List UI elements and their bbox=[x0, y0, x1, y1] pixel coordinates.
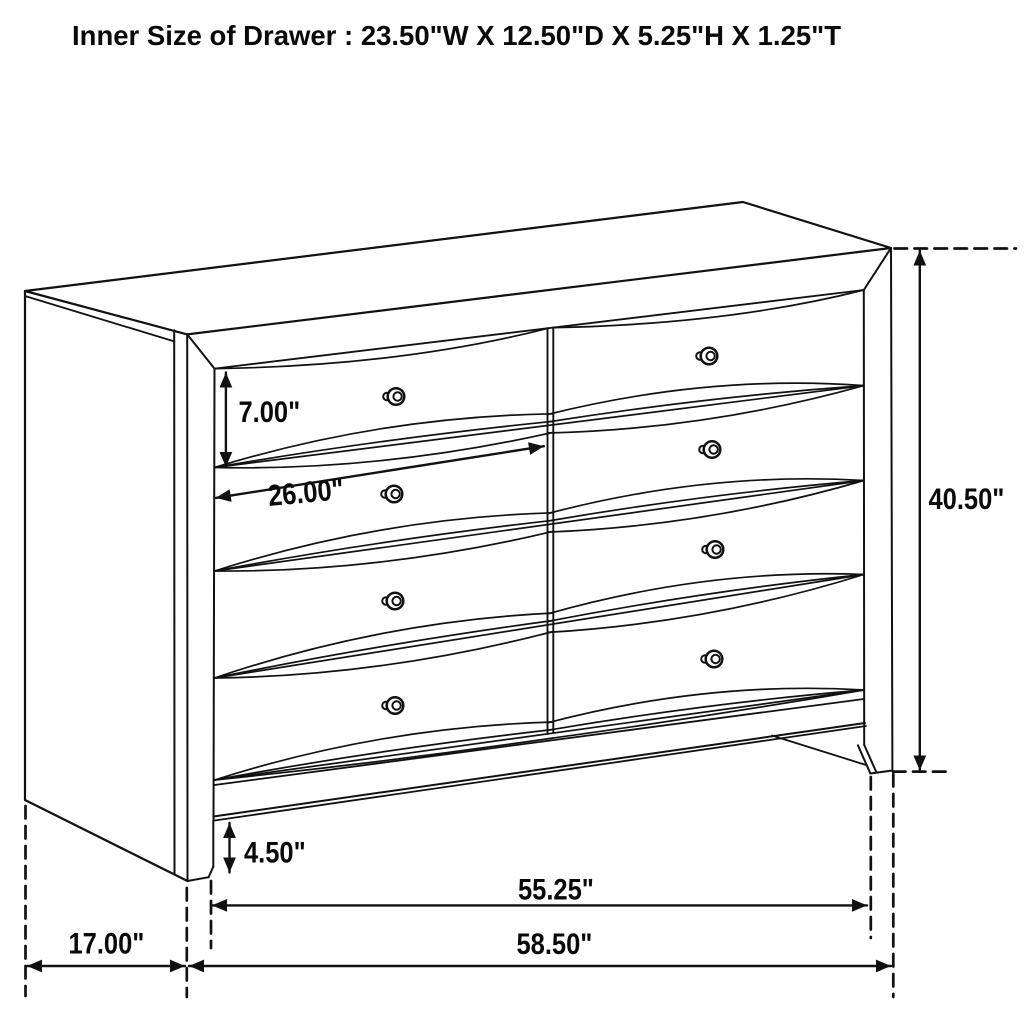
svg-text:17.00": 17.00" bbox=[69, 927, 145, 960]
svg-text:4.50": 4.50" bbox=[244, 836, 306, 869]
svg-text:40.50": 40.50" bbox=[929, 482, 1005, 515]
svg-text:55.25": 55.25" bbox=[518, 873, 594, 906]
svg-text:Inner Size of Drawer : 23.50"W: Inner Size of Drawer : 23.50"W X 12.50"D… bbox=[72, 20, 841, 51]
svg-text:26.00": 26.00" bbox=[267, 472, 346, 512]
svg-text:7.00": 7.00" bbox=[239, 395, 301, 428]
svg-text:58.50": 58.50" bbox=[517, 927, 593, 960]
